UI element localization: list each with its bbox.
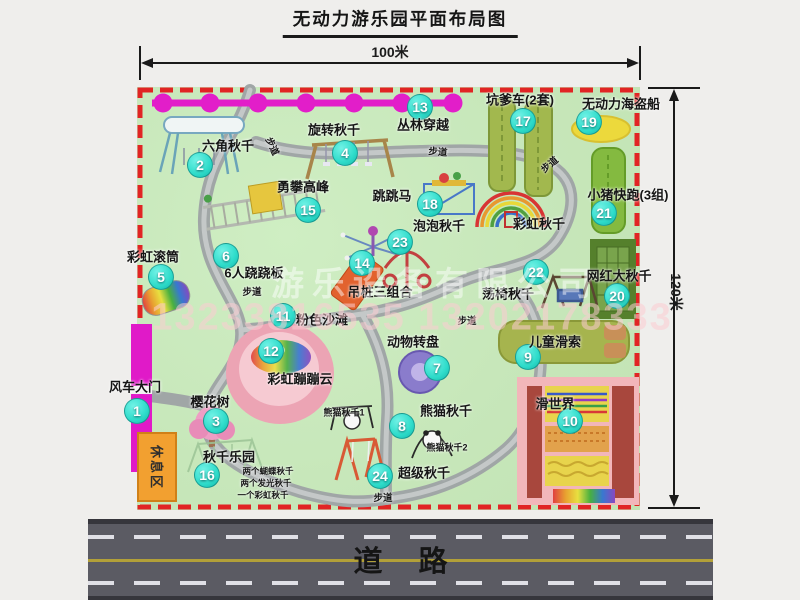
pink-beach-icon: [226, 322, 334, 424]
piggy-run-icon: [592, 148, 625, 233]
panda-swing-1-icon: [331, 406, 373, 430]
pirate-ship-icon: [572, 116, 630, 142]
rainbow-swing-icon: [477, 193, 545, 227]
super-swing-icon: [336, 439, 384, 480]
page-title: 无动力游乐园平面布局图: [283, 6, 518, 38]
hanging-post-icon: [330, 252, 385, 312]
height-dimension-label: 120米: [666, 273, 686, 310]
jumping-horse-icon: [424, 172, 474, 214]
climbing-peak-icon: [201, 175, 325, 229]
animal-turntable-icon: [399, 351, 441, 393]
seesaw-icon: [341, 226, 404, 261]
road-lane-line: [88, 581, 713, 585]
rainbow-drum-icon: [139, 277, 193, 318]
slide-world-icon: [517, 377, 639, 505]
net-swing-icon: [590, 239, 636, 319]
rotating-swing-icon: [307, 140, 393, 179]
road: 道路: [88, 519, 713, 600]
park-map: 无动力游乐园平面布局图 100米 120米: [0, 0, 800, 600]
pit-cart-icon: [489, 99, 552, 196]
rest-area-box: 休息区: [137, 432, 177, 502]
zipline-icon: [152, 94, 463, 113]
rest-area-label: 休息区: [148, 444, 167, 489]
panda-swing-2-icon: [412, 430, 452, 458]
width-dimension-label: 100米: [371, 42, 408, 62]
hexagon-swing-icon: [160, 117, 244, 174]
road-label: 道路: [317, 538, 483, 580]
kids-zipline-icon: [499, 321, 629, 363]
swing-chair-icon: [542, 277, 597, 308]
bubble-swing-icon: [384, 250, 430, 292]
